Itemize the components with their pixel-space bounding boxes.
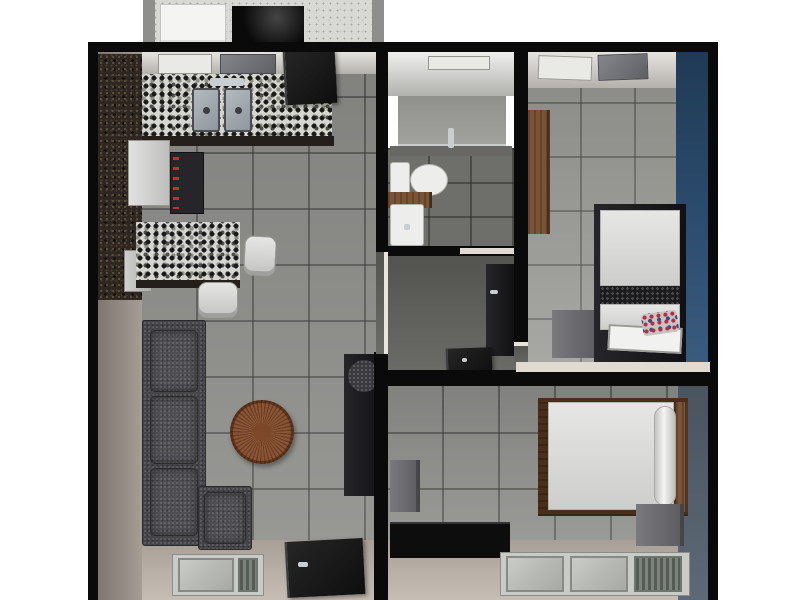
wall-bathroom-left — [376, 48, 388, 252]
bar-chair-2 — [198, 282, 238, 318]
bedroom1-bed-blanket-band — [600, 286, 680, 304]
living-window-pane-small — [238, 558, 258, 592]
vanity-faucet — [404, 224, 410, 230]
wall-top — [88, 42, 718, 52]
wall-hallway-bottom — [374, 370, 516, 386]
kitchen-ceiling-vent-1 — [158, 54, 212, 74]
sofa-corner-cushion — [204, 492, 246, 544]
sofa-cushion-2 — [150, 396, 198, 464]
washing-machine-white — [160, 4, 226, 44]
kitchen-counter-edge — [142, 136, 334, 146]
bedroom2-window-pane-2 — [570, 556, 628, 592]
service-pillar-left — [143, 0, 155, 44]
kitchen-peninsula-mosaic — [136, 222, 240, 284]
sofa-cushion-1 — [150, 330, 198, 392]
bedroom1-wardrobe-wood — [528, 110, 550, 234]
bedroom1-ceiling-vent-2 — [598, 53, 649, 81]
bedroom2-headboard-wood — [676, 402, 688, 512]
entrance-door — [285, 538, 366, 598]
bedroom1-ceiling-vent-1 — [538, 55, 593, 81]
bedroom1-bed-duvet — [600, 210, 680, 286]
bathroom-ceiling-vent — [428, 56, 490, 70]
bedrooms-divider-wall — [516, 372, 710, 386]
kitchen-open-door-panel — [283, 49, 338, 106]
bedroom2-window-pane-mesh — [634, 556, 682, 592]
coffee-table-round-wood — [230, 400, 294, 464]
bedroom1-doorway-jamb — [514, 342, 528, 346]
bathroom-door-jamb — [460, 248, 514, 254]
kitchen-sink-basin-left — [192, 88, 220, 132]
shower-faucet — [448, 128, 454, 148]
wall-left — [88, 42, 98, 600]
sofa-cushion-3 — [150, 468, 198, 536]
hallway-wardrobe — [486, 264, 514, 356]
wall-bedroom1-left — [514, 48, 528, 342]
service-pillar-right — [372, 0, 384, 44]
laundry-unit-black — [232, 6, 304, 44]
wall-right — [708, 42, 718, 600]
kitchen-sink-faucet — [210, 78, 244, 86]
living-hallway-doorway-jamb — [384, 252, 388, 354]
bedroom2-window-pane-1 — [506, 556, 564, 592]
bedroom1-nightstand — [552, 310, 598, 358]
entrance-door-handle — [298, 562, 308, 567]
bedroom2-dresser-black — [390, 522, 510, 558]
bedroom2-nightstand — [636, 504, 684, 546]
stove-range — [170, 152, 204, 214]
living-window-pane-large — [178, 558, 234, 592]
bedroom2-wall-tv — [390, 460, 420, 512]
kitchen-sink-basin-right — [224, 88, 252, 132]
wall-mid-lower — [374, 352, 388, 600]
bar-chair-1 — [243, 235, 277, 277]
fridge — [128, 140, 170, 206]
bedroom2-pillow-roll — [654, 406, 676, 506]
floor-plan-canvas — [0, 0, 800, 600]
hallway-door-handle — [462, 358, 467, 362]
hallway-wardrobe-handle — [490, 290, 498, 294]
kitchen-ceiling-vent-2 — [220, 54, 276, 74]
